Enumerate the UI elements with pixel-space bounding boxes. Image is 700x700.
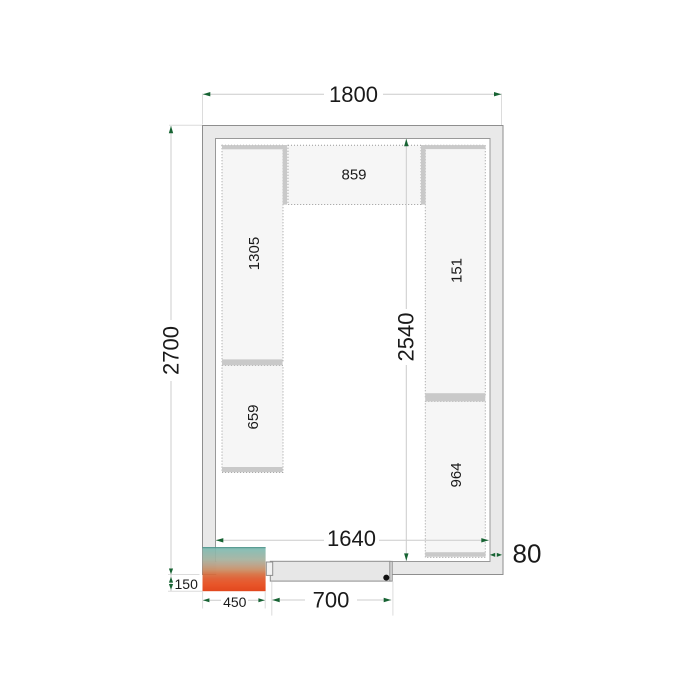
svg-text:151: 151 bbox=[449, 258, 466, 283]
svg-text:859: 859 bbox=[341, 167, 366, 184]
svg-text:1640: 1640 bbox=[327, 526, 376, 551]
svg-text:80: 80 bbox=[513, 539, 542, 569]
svg-text:2540: 2540 bbox=[394, 313, 419, 362]
svg-text:1305: 1305 bbox=[246, 237, 263, 270]
svg-text:700: 700 bbox=[313, 588, 350, 613]
svg-text:150: 150 bbox=[175, 576, 199, 592]
svg-text:450: 450 bbox=[223, 594, 247, 610]
svg-text:964: 964 bbox=[448, 462, 465, 487]
svg-text:659: 659 bbox=[245, 404, 262, 429]
svg-text:1800: 1800 bbox=[329, 82, 378, 107]
svg-text:2700: 2700 bbox=[159, 326, 184, 375]
